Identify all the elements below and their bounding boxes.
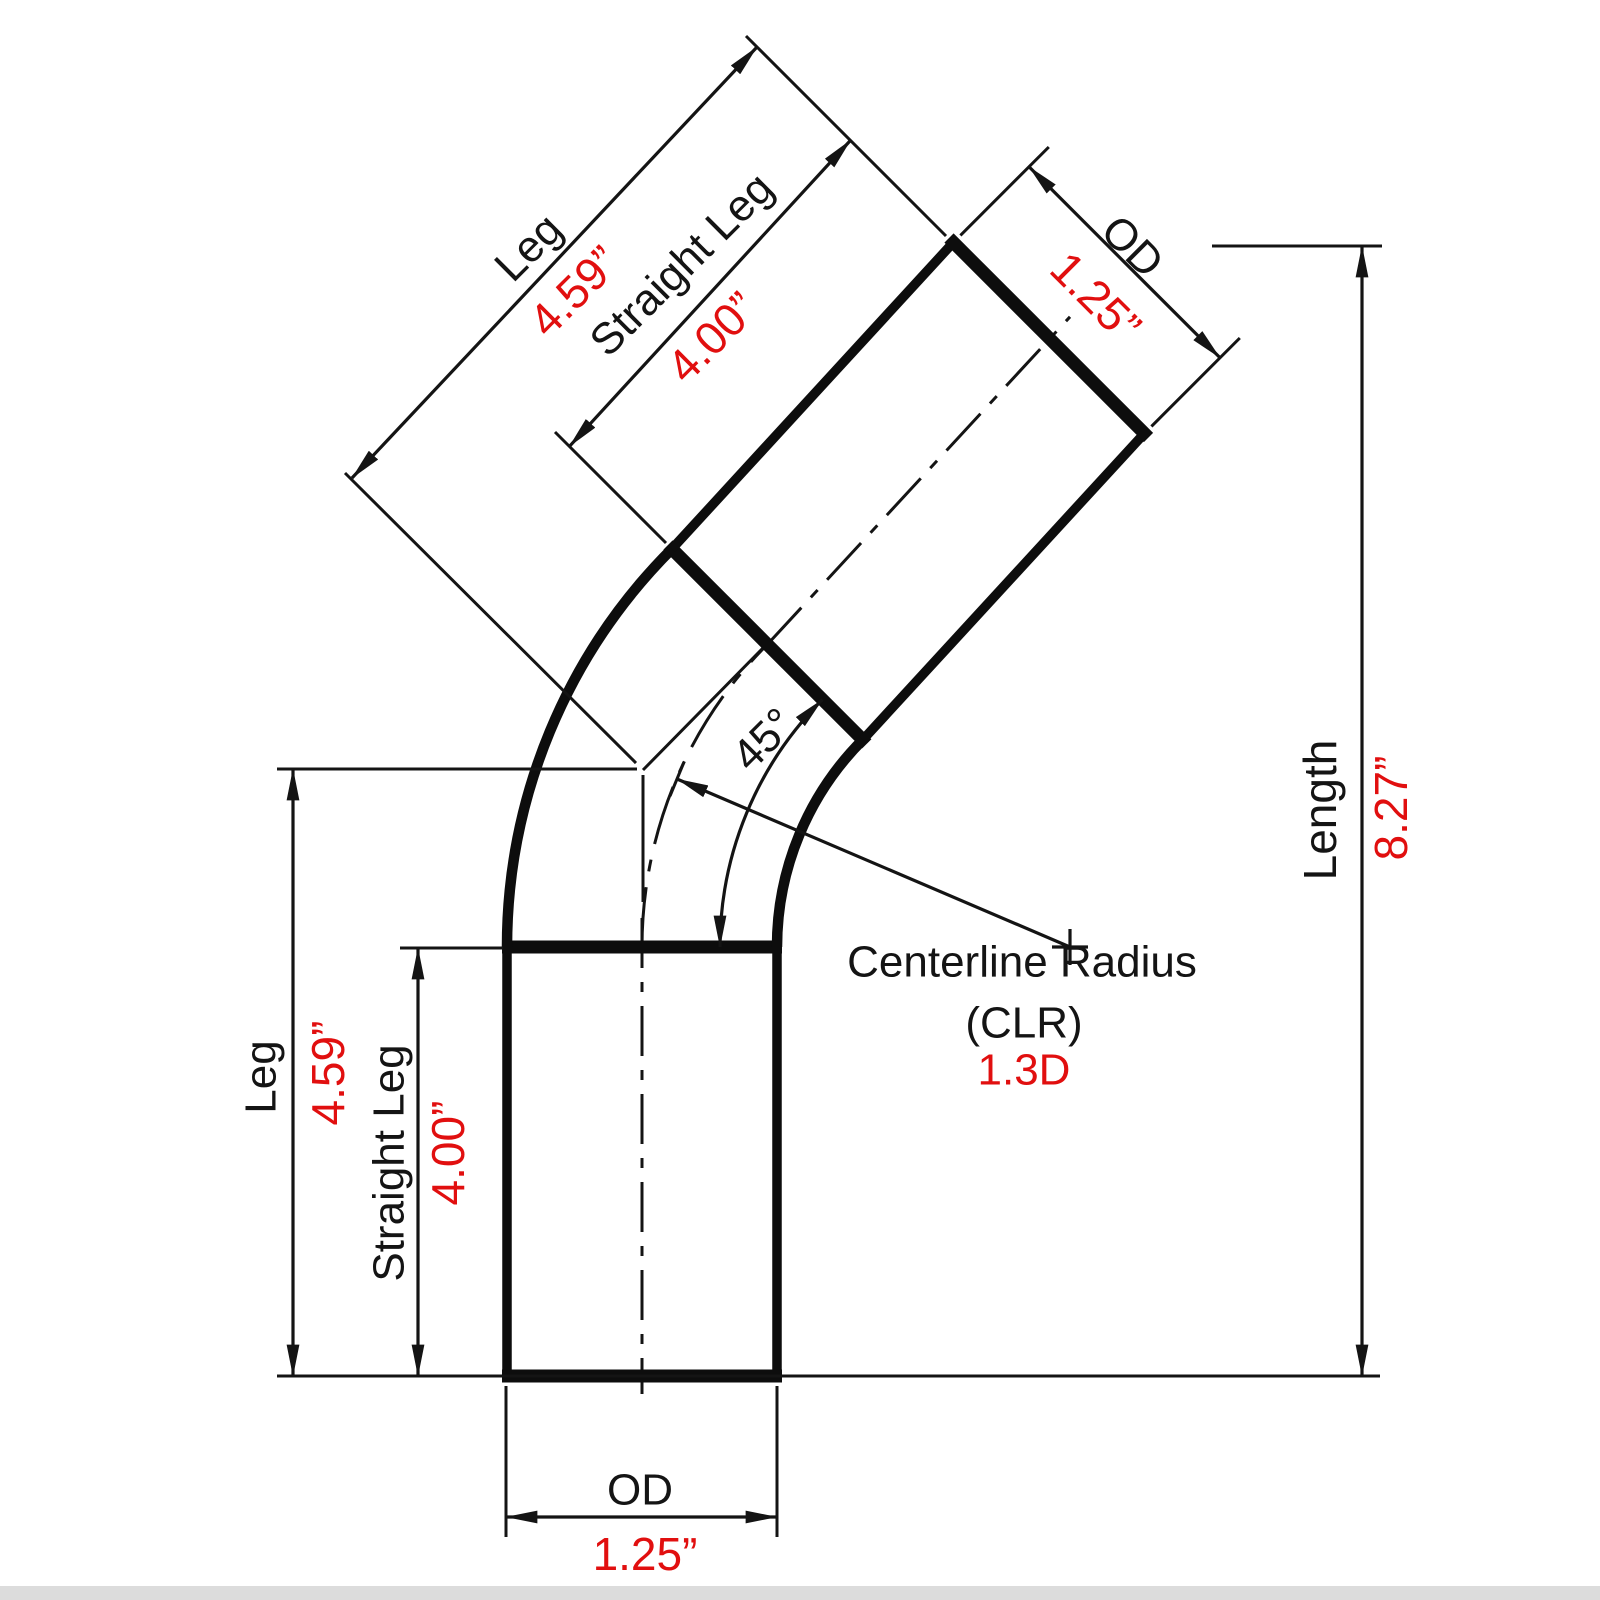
- dim-bottom-od-value: 1.25”: [593, 1528, 698, 1580]
- clr-value: 1.3D: [978, 1045, 1071, 1094]
- dim-left-leg-label: Leg: [236, 1040, 285, 1113]
- dim-upper-straight-leg: Straight Leg 4.00”: [555, 140, 851, 543]
- clr-leader-line: [677, 779, 1070, 947]
- end-cap-extension-line: [746, 36, 946, 236]
- weld-extension-line: [555, 432, 666, 543]
- dim-upper-leg: Leg 4.59”: [345, 36, 946, 763]
- dim-length-label: Length: [1294, 740, 1346, 881]
- od-extension-line-bottom: [1151, 338, 1239, 426]
- clr-leader-tick: [670, 762, 684, 796]
- dim-left-leg: Leg 4.59”: [236, 769, 637, 1376]
- dim-length-value: 8.27”: [1365, 756, 1417, 861]
- dim-bottom-od: OD 1.25”: [506, 1386, 777, 1580]
- od-extension-line-top: [960, 147, 1048, 235]
- pipe-bend-diagram: Leg 4.59” Straight Leg 4.00” OD 1.25” Le…: [0, 0, 1600, 1600]
- bottom-edge-strip: [0, 1586, 1600, 1600]
- clr-label-line2: (CLR): [965, 998, 1082, 1047]
- bend-inner-arc: [777, 740, 863, 947]
- dim-bottom-od-label: OD: [607, 1465, 673, 1514]
- upper-leg-centerline: [767, 317, 1070, 645]
- dim-left-straight-leg: Straight Leg 4.00”: [364, 948, 503, 1376]
- clr-label-line1: Centerline Radius: [847, 937, 1197, 986]
- upper-leg-bottom-edge: [863, 434, 1145, 740]
- pipe-outline: [502, 238, 1149, 1376]
- dim-left-straight-leg-label: Straight Leg: [364, 1044, 413, 1281]
- dim-left-straight-leg-value: 4.00”: [422, 1101, 474, 1206]
- dim-left-leg-value: 4.59”: [302, 1021, 354, 1126]
- dim-length: Length 8.27”: [1212, 246, 1417, 1376]
- apex-extension-line: [345, 473, 636, 763]
- bend-centerline-arc: [642, 644, 767, 947]
- centerline-radius-leader: Centerline Radius (CLR) 1.3D: [670, 762, 1197, 1094]
- angle-value-text: 45°: [723, 699, 805, 781]
- bend-outer-arc: [507, 549, 672, 947]
